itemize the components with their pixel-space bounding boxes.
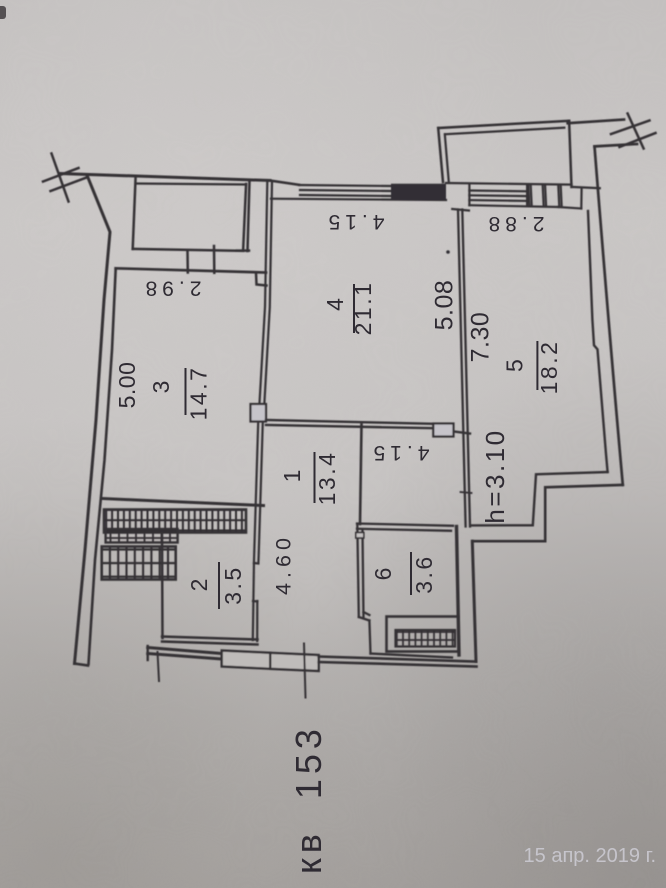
svg-text:15 апр. 2019 г.: 15 апр. 2019 г. — [524, 845, 656, 867]
svg-text:14.7: 14.7 — [186, 366, 212, 421]
svg-text:2.98: 2.98 — [141, 277, 202, 300]
svg-text:18.2: 18.2 — [536, 340, 562, 395]
svg-text:7.30: 7.30 — [467, 312, 495, 363]
svg-text:5: 5 — [502, 359, 528, 372]
svg-text:6: 6 — [370, 568, 396, 581]
svg-text:4.60: 4.60 — [272, 533, 296, 595]
svg-text:3: 3 — [148, 381, 174, 394]
svg-text:4: 4 — [322, 298, 348, 311]
svg-text:h=3.10: h=3.10 — [480, 428, 510, 523]
svg-text:4.15: 4.15 — [324, 210, 385, 233]
svg-text:2.88: 2.88 — [484, 212, 545, 235]
svg-text:5.00: 5.00 — [114, 362, 140, 409]
svg-text:кв 153: кв 153 — [288, 724, 329, 874]
svg-text:5.08: 5.08 — [431, 280, 459, 331]
svg-text:2: 2 — [186, 579, 212, 592]
svg-text:3.6: 3.6 — [411, 554, 437, 593]
svg-text:3.5: 3.5 — [220, 565, 246, 604]
svg-text:1: 1 — [279, 470, 305, 483]
svg-text:4.15: 4.15 — [369, 441, 430, 464]
svg-text:13.4: 13.4 — [314, 451, 340, 506]
